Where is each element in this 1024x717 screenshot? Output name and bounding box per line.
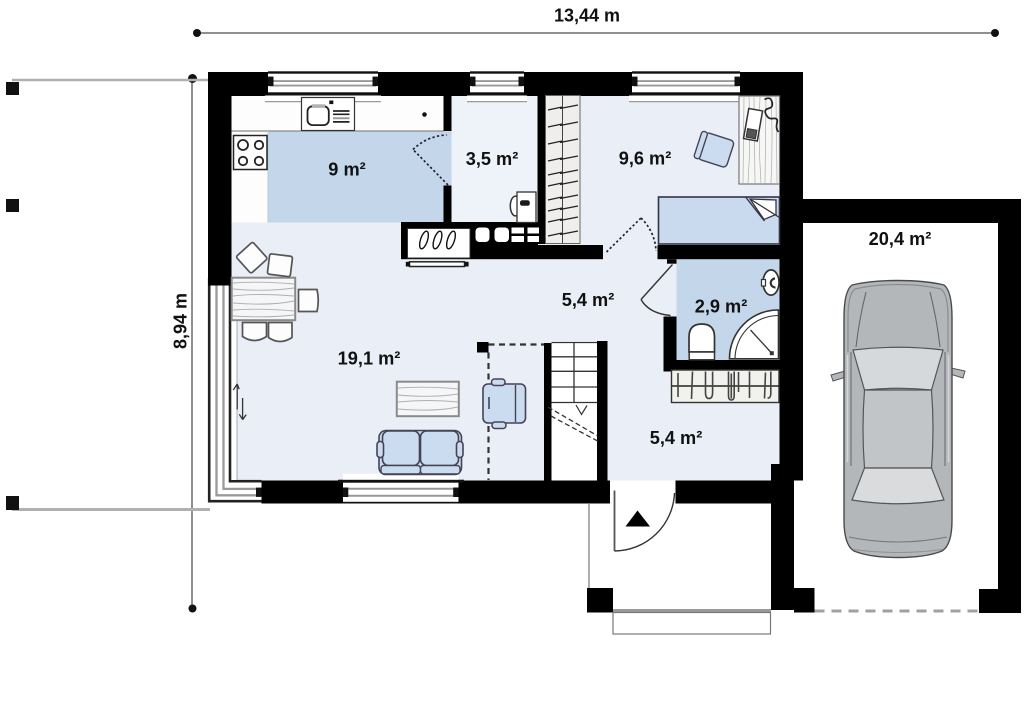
svg-text:3,5 m²: 3,5 m² bbox=[466, 149, 519, 169]
svg-text:8,94 m: 8,94 m bbox=[171, 293, 191, 349]
svg-text:9,6 m²: 9,6 m² bbox=[619, 149, 672, 169]
svg-text:5,4 m²: 5,4 m² bbox=[650, 428, 703, 448]
svg-text:9 m²: 9 m² bbox=[328, 160, 365, 180]
svg-text:2,9 m²: 2,9 m² bbox=[695, 297, 748, 317]
svg-text:13,44 m: 13,44 m bbox=[554, 6, 620, 26]
svg-text:5,4 m²: 5,4 m² bbox=[562, 290, 615, 310]
svg-text:19,1 m²: 19,1 m² bbox=[338, 349, 401, 369]
svg-text:20,4 m²: 20,4 m² bbox=[869, 229, 932, 249]
